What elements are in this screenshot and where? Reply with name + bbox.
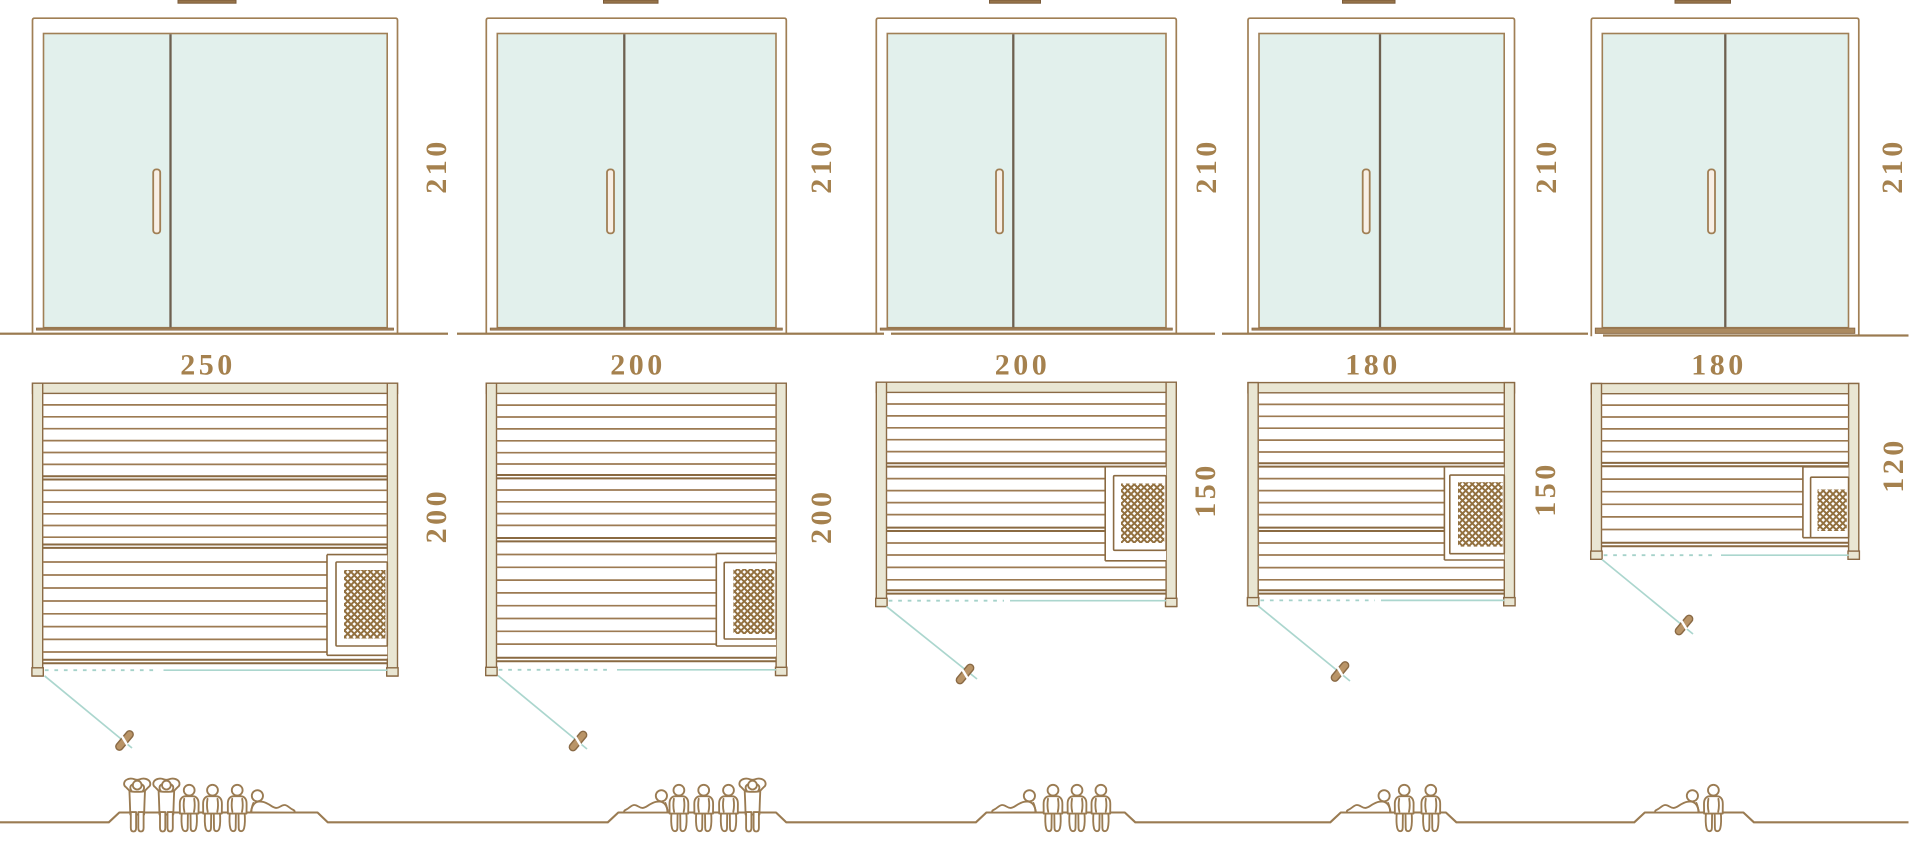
svg-text:210: 210 [805, 138, 838, 194]
svg-text:120: 120 [1877, 437, 1910, 493]
svg-text:150: 150 [1189, 462, 1222, 518]
svg-text:150: 150 [1529, 461, 1562, 517]
svg-text:200: 200 [805, 488, 838, 544]
svg-text:200: 200 [610, 349, 666, 382]
svg-text:200: 200 [420, 488, 453, 544]
svg-text:180: 180 [1345, 349, 1401, 382]
svg-text:210: 210 [1876, 138, 1909, 194]
svg-text:180: 180 [1691, 349, 1747, 382]
svg-text:250: 250 [180, 349, 236, 382]
svg-text:210: 210 [420, 138, 453, 194]
svg-text:200: 200 [995, 349, 1051, 382]
svg-text:210: 210 [1530, 138, 1563, 194]
svg-text:210: 210 [1190, 138, 1223, 194]
